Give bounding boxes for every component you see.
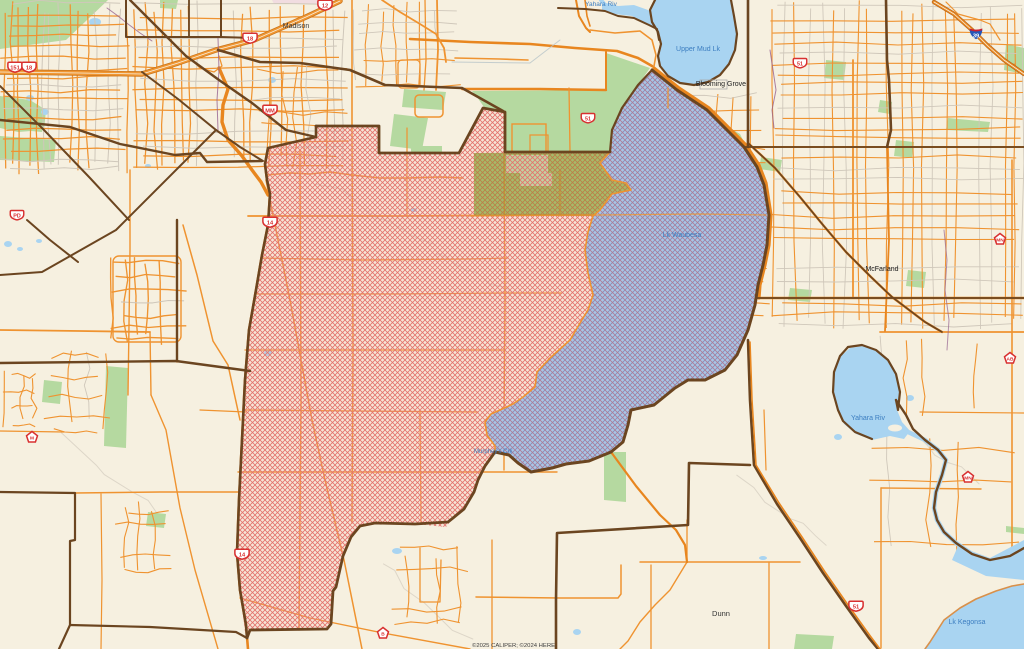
svg-text:39: 39 [973,34,979,40]
svg-text:18: 18 [26,65,32,71]
svg-text:Madison: Madison [283,23,310,30]
svg-text:12: 12 [322,3,328,9]
svg-text:151: 151 [10,65,20,71]
svg-text:51: 51 [585,116,591,122]
svg-text:Murphey's Crk: Murphey's Crk [474,449,513,455]
svg-text:Yahara Riv: Yahara Riv [851,415,886,422]
svg-text:©2025 CALIPER; ©2024 HERE: ©2025 CALIPER; ©2024 HERE [472,642,555,649]
svg-text:Lk Waubesa: Lk Waubesa [663,232,702,239]
svg-text:14: 14 [239,552,246,558]
svg-text:51: 51 [853,604,859,610]
svg-text:PD: PD [13,213,21,219]
svg-text:McFarland: McFarland [865,266,898,273]
svg-text:Lk Kegonsa: Lk Kegonsa [949,619,986,626]
svg-text:MN: MN [996,238,1004,244]
svg-text:Dunn: Dunn [712,609,730,618]
svg-text:M: M [30,436,34,442]
svg-text:18: 18 [247,36,253,42]
svg-text:AB: AB [1007,357,1014,363]
svg-text:51: 51 [797,61,803,67]
svg-text:MN: MN [964,476,972,482]
svg-text:B: B [381,632,385,638]
svg-text:Blooming Grove: Blooming Grove [696,81,746,88]
svg-text:MM: MM [265,108,275,114]
svg-text:Upper Mud Lk: Upper Mud Lk [676,46,720,53]
svg-text:Yahara Riv: Yahara Riv [585,1,617,8]
svg-text:14: 14 [267,220,274,226]
